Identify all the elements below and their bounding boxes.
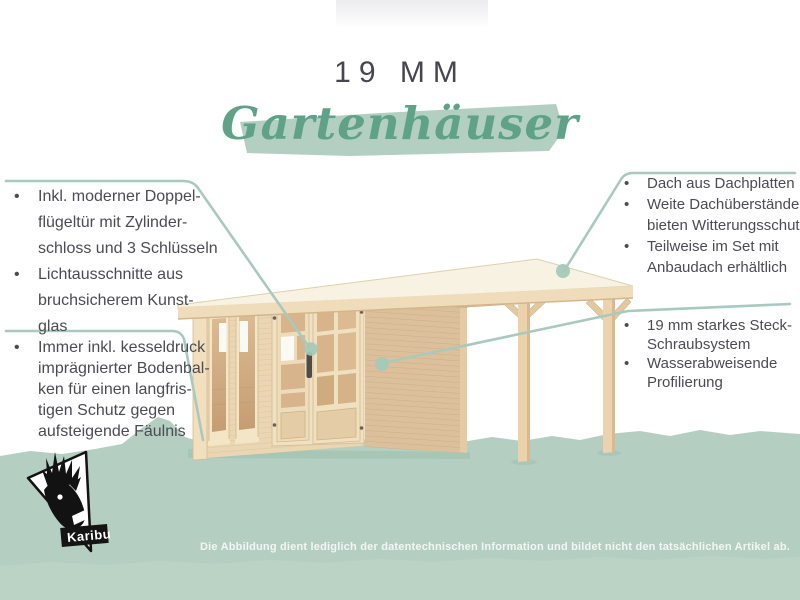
- callout-item: • Wasserabweisende Profilierung: [622, 354, 792, 392]
- script-title: Gartenhäuser: [0, 97, 800, 150]
- double-door: [272, 298, 364, 446]
- door-hinge: [273, 316, 277, 320]
- cabin-right-wall-corner-trim: [460, 302, 467, 453]
- door-hinge: [273, 423, 277, 427]
- callout-line: 19 mm starkes Steck-: [647, 316, 792, 335]
- callout-item: • Inkl. moderner Doppel- flügeltür mit Z…: [12, 184, 218, 262]
- door-handle: [307, 352, 313, 378]
- callout-line: aufsteigende Fäulnis: [38, 421, 210, 442]
- door-bottom-panel: [317, 408, 356, 440]
- callout-right-bottom: • 19 mm starkes Steck- Schraubsystem • W…: [622, 316, 792, 392]
- callout-line: Wasserabweisende: [647, 354, 792, 373]
- dot-wall: [375, 357, 389, 371]
- callout-line: Weite Dachüberstände: [647, 194, 800, 215]
- bullet-icon: •: [12, 262, 38, 288]
- dot-door: [304, 342, 317, 355]
- deer-eye-icon: [57, 494, 62, 499]
- bullet-icon: •: [622, 316, 647, 335]
- garden-house-illustration: [178, 259, 633, 465]
- bullet-icon: •: [622, 354, 647, 373]
- door-light-cutout: [281, 336, 294, 361]
- bullet-icon: •: [12, 337, 38, 358]
- callout-line: flügeltür mit Zylinder-: [38, 210, 218, 236]
- callout-line: schloss und 3 Schlüsseln: [38, 236, 218, 262]
- door-bottom-panel: [281, 411, 305, 439]
- callout-line: bieten Witterungsschutz: [647, 215, 800, 236]
- bullet-icon: •: [622, 194, 647, 215]
- callout-line: Teilweise im Set mit: [647, 236, 800, 257]
- bullet-icon: •: [622, 173, 647, 194]
- callout-item: • Weite Dachüberstände bieten Witterungs…: [622, 194, 800, 236]
- canopy-post-left: [500, 296, 548, 462]
- callout-line: Dach aus Dachplatten: [647, 173, 800, 194]
- bullet-icon: •: [12, 184, 38, 210]
- door-hinge: [360, 426, 364, 430]
- bullet-icon: •: [622, 236, 647, 257]
- callout-left-top: • Inkl. moderner Doppel- flügeltür mit Z…: [12, 184, 218, 340]
- callout-line: Schraubsystem: [647, 335, 792, 354]
- footer-disclaimer: Die Abbildung dient lediglich der datent…: [200, 541, 790, 553]
- callout-line: ken für einen langfris-: [38, 379, 210, 400]
- callout-item: • Lichtausschnitte aus bruchsicherem Kun…: [12, 262, 218, 340]
- callout-item: • 19 mm starkes Steck- Schraubsystem: [622, 316, 792, 354]
- callout-line: Anbaudach erhältlich: [647, 257, 800, 278]
- callout-line: Lichtausschnitte aus: [38, 262, 218, 288]
- dot-roof: [556, 264, 570, 278]
- callout-line: imprägnierter Bodenbal-: [38, 358, 210, 379]
- callout-left-bottom: • Immer inkl. kesseldruck imprägnierter …: [12, 337, 210, 442]
- window-light-cutout: [219, 323, 227, 352]
- callout-line: bruchsicherem Kunst-: [38, 288, 218, 314]
- callout-item: • Immer inkl. kesseldruck imprägnierter …: [12, 337, 210, 442]
- callout-line: Profilierung: [647, 373, 792, 392]
- callout-line: Immer inkl. kesseldruck: [38, 337, 210, 358]
- window-right: [235, 311, 259, 444]
- callout-item: • Dach aus Dachplatten: [622, 173, 800, 194]
- callout-item: • Teilweise im Set mit Anbaudach erhältl…: [622, 236, 800, 278]
- window-light-cutout: [240, 321, 249, 352]
- callout-line: tigen Schutz gegen: [38, 400, 210, 421]
- callout-right-top: • Dach aus Dachplatten • Weite Dachübers…: [622, 173, 800, 278]
- cabin-right-wall-planks: [365, 296, 467, 453]
- callout-line: Inkl. moderner Doppel-: [38, 184, 218, 210]
